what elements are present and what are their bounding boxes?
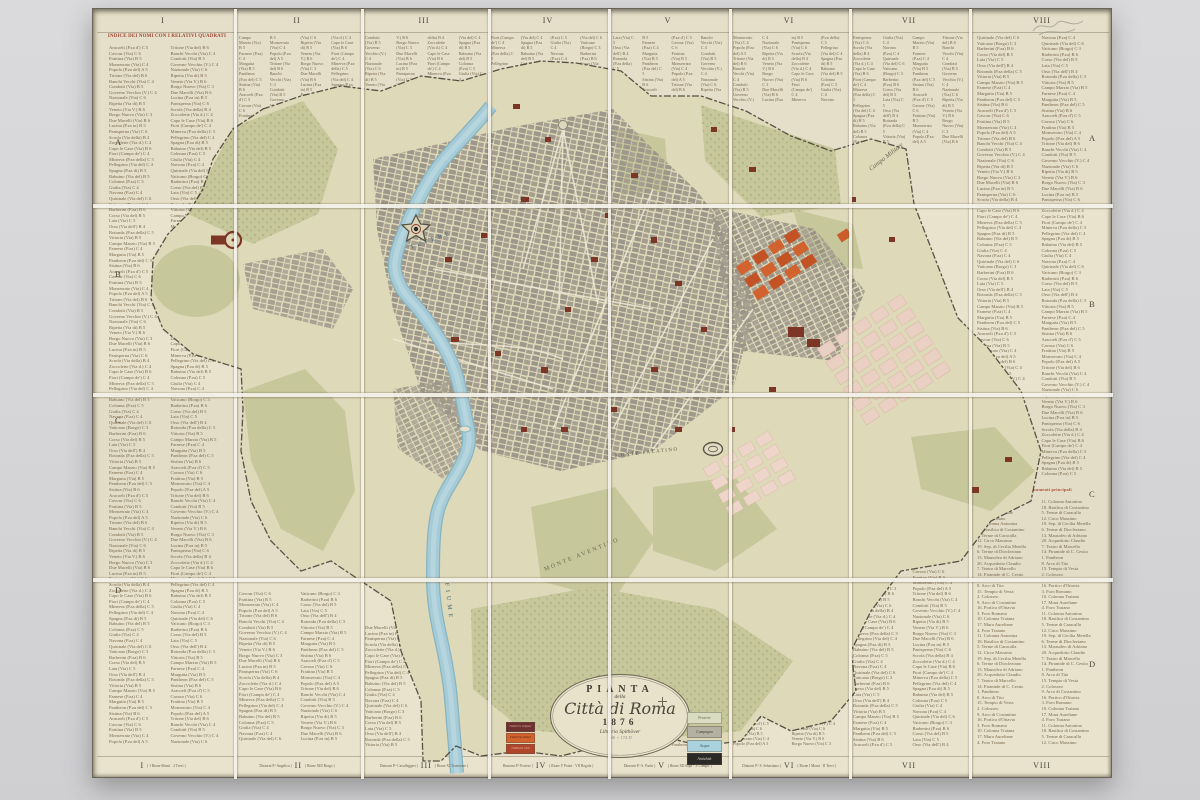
rione-note-left: Dintorni P.ª Portese ) [503,764,533,768]
rione-note-left: Dintorni P.ª S. Paolo ) [624,764,656,768]
river-label-tevere: TEVERE [410,230,453,251]
grid-numeral: II [295,761,302,770]
grid-column-label-top: II [293,16,300,25]
grid-column-label-top: IV [543,16,553,25]
grid-numeral: VII [902,761,916,770]
rione-note-right: ( Rione I Monti · II Trevi ) [797,764,835,768]
photo-backdrop: INDICE DEI NOMI CON I RELATIVI QUADRATI … [0,0,1200,800]
pencil-annotation [1031,13,1101,39]
fold-line-horizontal [93,578,1113,582]
legend-swatch-civili: Fabbriche civili [506,744,535,754]
grid-row-label-left: A [115,137,121,147]
grid-column-label-top: III [419,16,430,25]
street-index-vi-lower: Margutta (Via) B 5Pantheon (P.za del) C … [733,705,843,749]
street-index-strip-v: Lata (Via) C 5Orso (Via dell') B 4Rotond… [613,35,723,93]
rione-note-left: Dintorni P.ª S. Sebastiano ) [742,764,781,768]
grid-column-label-bottom: Dintorni P.ª Angelica ) II ( Rione XIII … [259,761,334,770]
monuments-index-list: 3. Foro Romano10. Colonna Traiana17. Mur… [977,499,1099,747]
pencil-dimension-note: 146 × 174 D [551,735,689,740]
monuments-index-header: Elenco dei monumenti principali [977,487,1099,492]
grid-column-label-bottom: VIII [1033,761,1051,770]
grid-column-label-bottom: Dintorni P.ª S. Paolo ) V ( Rione XII Ri… [624,761,712,770]
grid-row-label-left: C [115,415,121,425]
street-index-strip-iv: Fiori (Campo de') C 4Minerva (P.za della… [491,35,603,71]
piazza-del-popolo-icon [559,121,568,130]
legend-swatch-militari: Fabbriche militari [506,733,535,743]
street-index-strip-vi: Monserrato (Via) C 4Popolo (P.za del) A … [733,35,843,103]
grid-numeral: VI [784,761,794,770]
fold-line-horizontal [93,393,1113,397]
grid-column-label-top: VII [902,16,916,25]
rione-note-right: ( Rione V Ponte · VII Regola ) [549,764,593,768]
street-index-strip-ii: Campo Marzio (Via) B 5Farnese (P.za) C 4… [239,35,355,123]
rione-note-left: Dintorni P.ª Cavalleggeri ) [380,764,418,768]
rione-note-right: ( Rione XI Trastevere ) [435,764,468,768]
grid-numeral: V [658,761,665,770]
grid-row-label-right: A [1089,133,1095,143]
grid-row-label-left: D [115,585,121,595]
grid-column-label-top: I [161,16,165,25]
compass-mark-icon [658,697,667,706]
monte-palatino-label: MONTE PALATINO [615,447,679,459]
pink-planned-blocks-south [703,431,795,516]
street-index-strip-vii: Panisperna (Via) C 6Scrofa (Via della) B… [853,35,965,145]
legend-swatch-campagna: Campagna [687,726,722,738]
rione-note-right: ( Rione XII Ripa · X Campit. ) [668,764,712,768]
rione-note-right: ( Rione XIII Borgo ) [305,764,335,768]
grid-column-label-bottom: VII [902,761,916,770]
main-streets [393,129,753,449]
pink-planned-blocks [817,294,950,425]
built-up-blocks [243,109,865,479]
panel-tint [93,393,1111,578]
street-index-iii-lower: Due Macelli (Via) B 6Lucina (P.za in) B … [365,625,483,749]
tiber-island [460,426,471,432]
title-cartouche: PIANTA della Città di Roma 1876 Libreria… [550,674,690,758]
colosseum-icon [704,443,723,456]
grid-row-label-right: B [1089,299,1095,309]
street-index-vii-lower: Nazionale (Via) C 6Ripetta (Via di) B 5V… [853,569,965,749]
grid-row-label-right: C [1089,489,1095,499]
grid-column-label-bottom: Dintorni P.ª Cavalleggeri ) III ( Rione … [380,761,468,770]
red-landmark-buildings [421,104,1012,493]
grid-row-label-left: B [115,269,121,279]
map-title-citta-di-roma: Città di Roma [551,699,689,718]
index-header: INDICE DEI NOMI CON I RELATIVI QUADRATI [107,34,227,39]
street-index-column-viii-upper: Quirinale (Via del) C 6Vaticano (Borgo) … [977,35,1099,481]
grid-row-label-right: D [1089,659,1095,669]
orange-barracks-blocks [736,228,817,300]
grid-column-label-bottom: Dintorni P.ª Portese ) IV ( Rione V Pont… [503,761,594,770]
grid-numeral: I [140,761,144,770]
grid-column-label-top: V [665,16,672,25]
campo-militare-label: Campo Militare [868,141,905,172]
street-index-strip-iii: Condotti (Via) B 5Governo Vecchio (V.) C… [365,35,483,91]
grid-numeral: III [421,761,432,770]
map-year: 1876 [551,718,689,728]
castel-santangelo-icon [402,215,430,241]
street-index-ii-lower: Cavour (Via) C 6Frattina (Via) B 5Monser… [239,591,355,747]
fold-line-horizontal [93,204,1113,208]
folded-map-rome-1876: INDICE DEI NOMI CON I RELATIVI QUADRATI … [92,8,1112,778]
legend-swatch-religiose: Fabbriche religiose [506,722,535,732]
river-label-fiume: FIUME [443,583,454,622]
grid-column-label-top: VI [784,16,794,25]
grid-numeral: IV [536,761,546,770]
rione-note-left: Dintorni P.ª Angelica ) [259,764,291,768]
grid-column-label-bottom: I ( 1 Rione Monti · 2 Trevi ) [140,761,185,770]
legend-swatch-praterie: Praterie [687,712,722,724]
top-margin-rule [97,32,1109,33]
grid-column-label-bottom: Dintorni P.ª S. Sebastiano ) VI ( Rione … [742,761,836,770]
legend-swatch-acqua: Acqua [687,740,722,752]
rione-note-right: ( 1 Rione Monti · 2 Trevi ) [147,764,185,768]
grid-numeral: VIII [1033,761,1051,770]
